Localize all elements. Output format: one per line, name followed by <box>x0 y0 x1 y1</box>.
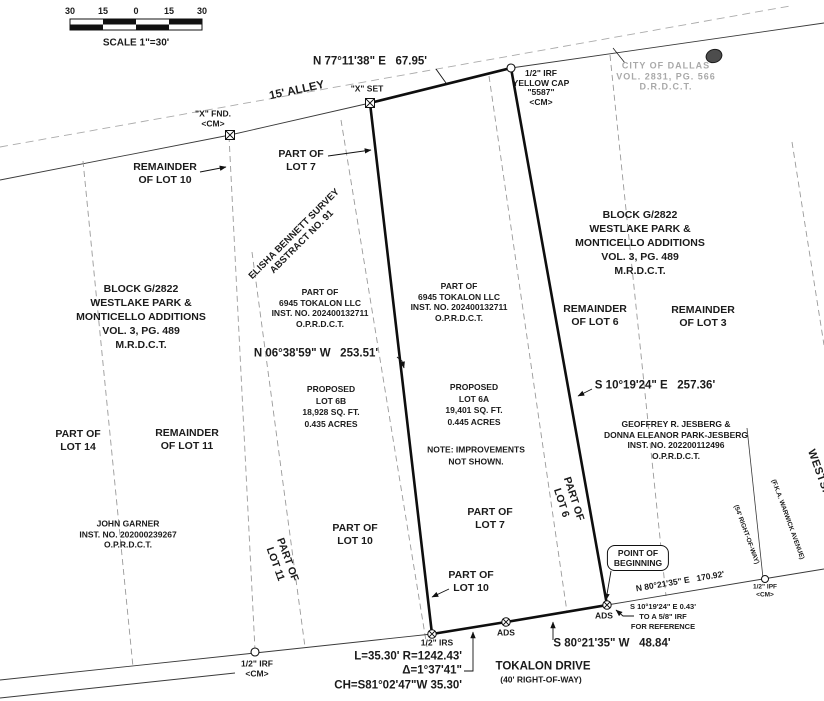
scale-tick-2: 0 <box>133 6 138 16</box>
scale-tick-3: 15 <box>164 6 174 16</box>
part-lot7-top-label: PART OF LOT 7 <box>278 148 323 174</box>
parcel-boundary <box>370 68 607 634</box>
bearing-east-label: S 10°19'24" E 257.36' <box>595 380 715 393</box>
block-record-west: BLOCK G/2822 WESTLAKE PARK & MONTICELLO … <box>76 282 206 352</box>
scale-tick-4: 30 <box>197 6 207 16</box>
owner-tokalon-west: PART OF 6945 TOKALON LLC INST. NO. 20240… <box>272 287 369 329</box>
curve-delta-label: Δ=1°37'41" <box>402 665 462 678</box>
scale-tick-0: 30 <box>65 6 75 16</box>
bearing-north-label: N 77°11'38" E 67.95' <box>313 56 427 69</box>
city-of-dallas-note: CITY OF DALLAS VOL. 2831, PG. 566 D.R.D.… <box>616 60 716 92</box>
tokalon-south-edge <box>0 673 235 698</box>
irf-yellow-cap-label: 1/2" IRF YELLOW CAP "5587" <CM> <box>513 69 570 107</box>
improvements-note: NOTE: IMPROVEMENTS NOT SHOWN. <box>427 445 525 468</box>
scale-bar <box>70 19 202 30</box>
part-lot10-mid-label: PART OF LOT 10 <box>332 522 377 548</box>
scale-label: SCALE 1"=30' <box>103 38 169 49</box>
remainder-lot10-label: REMAINDER OF LOT 10 <box>133 161 197 187</box>
part-lot10-low-label: PART OF LOT 10 <box>448 569 493 595</box>
westshore-fka: (F.K.A. WARWICK AVENUE) <box>764 464 811 575</box>
x-fnd-label: "X" FND. <CM> <box>195 110 231 129</box>
westshore-name: WESTSHORE DRIVE <box>805 448 824 560</box>
curve-chord-label: CH=S81°02'47"W 35.30' <box>334 680 462 693</box>
remainder-lot6-label: REMAINDER OF LOT 6 <box>563 303 627 329</box>
point-of-beginning-box: POINT OF BEGINNING <box>607 545 669 571</box>
part-lot14-label: PART OF LOT 14 <box>55 428 100 454</box>
curve-length-radius-label: L=35.30' R=1242.43' <box>354 651 462 664</box>
tokalon-drive-label: TOKALON DRIVE <box>496 661 591 674</box>
x-set-marker <box>366 99 375 108</box>
reference-tie-note: S 10°19'24" E 0.43' TO A 5/8" IRF FOR RE… <box>630 602 696 632</box>
owner-tokalon-east: PART OF 6945 TOKALON LLC INST. NO. 20240… <box>411 281 508 323</box>
ads-marker-pob <box>603 601 611 609</box>
ads-marker-mid <box>502 618 510 626</box>
irs-label: 1/2" IRS <box>421 638 453 648</box>
x-set-label: "X" SET <box>351 84 384 94</box>
westshore-row: (54' RIGHT-OF-WAY) <box>722 479 769 590</box>
irf-sw-label: 1/2" IRF <CM> <box>241 660 273 679</box>
tokalon-row-label: (40' RIGHT-OF-WAY) <box>500 675 582 685</box>
proposed-lot6a-label: PROPOSED LOT 6A 19,401 SQ. FT. 0.445 ACR… <box>445 382 502 428</box>
scale-tick-1: 15 <box>98 6 108 16</box>
survey-plat: 30 15 0 15 30 SCALE 1"=30' 15' ALLEY TOK… <box>0 0 824 701</box>
bearing-west-label: N 06°38'59" W 253.51' <box>254 348 378 361</box>
owner-jesberg: GEOFFREY R. JESBERG & DONNA ELEANOR PARK… <box>604 419 748 461</box>
x-fnd-marker <box>226 131 235 140</box>
ads-label-pob: ADS <box>595 611 613 621</box>
ads-label-mid: ADS <box>497 628 515 638</box>
owner-garner: JOHN GARNER INST. NO. 202000239267 O.P.R… <box>79 518 176 550</box>
remainder-lot11-label: REMAINDER OF LOT 11 <box>155 427 219 453</box>
proposed-lot6b-label: PROPOSED LOT 6B 18,928 SQ. FT. 0.435 ACR… <box>302 384 359 430</box>
part-lot7-low-label: PART OF LOT 7 <box>467 506 512 532</box>
irf-sw-marker <box>251 648 259 656</box>
block-record-east: BLOCK G/2822 WESTLAKE PARK & MONTICELLO … <box>575 208 705 278</box>
remainder-lot3-label: REMAINDER OF LOT 3 <box>671 304 735 330</box>
point-of-beginning-label: POINT OF BEGINNING <box>614 548 662 568</box>
ipf-label: 1/2" IPF <CM> <box>753 584 777 599</box>
bearing-south-label: S 80°21'35" W 48.84' <box>553 638 670 651</box>
